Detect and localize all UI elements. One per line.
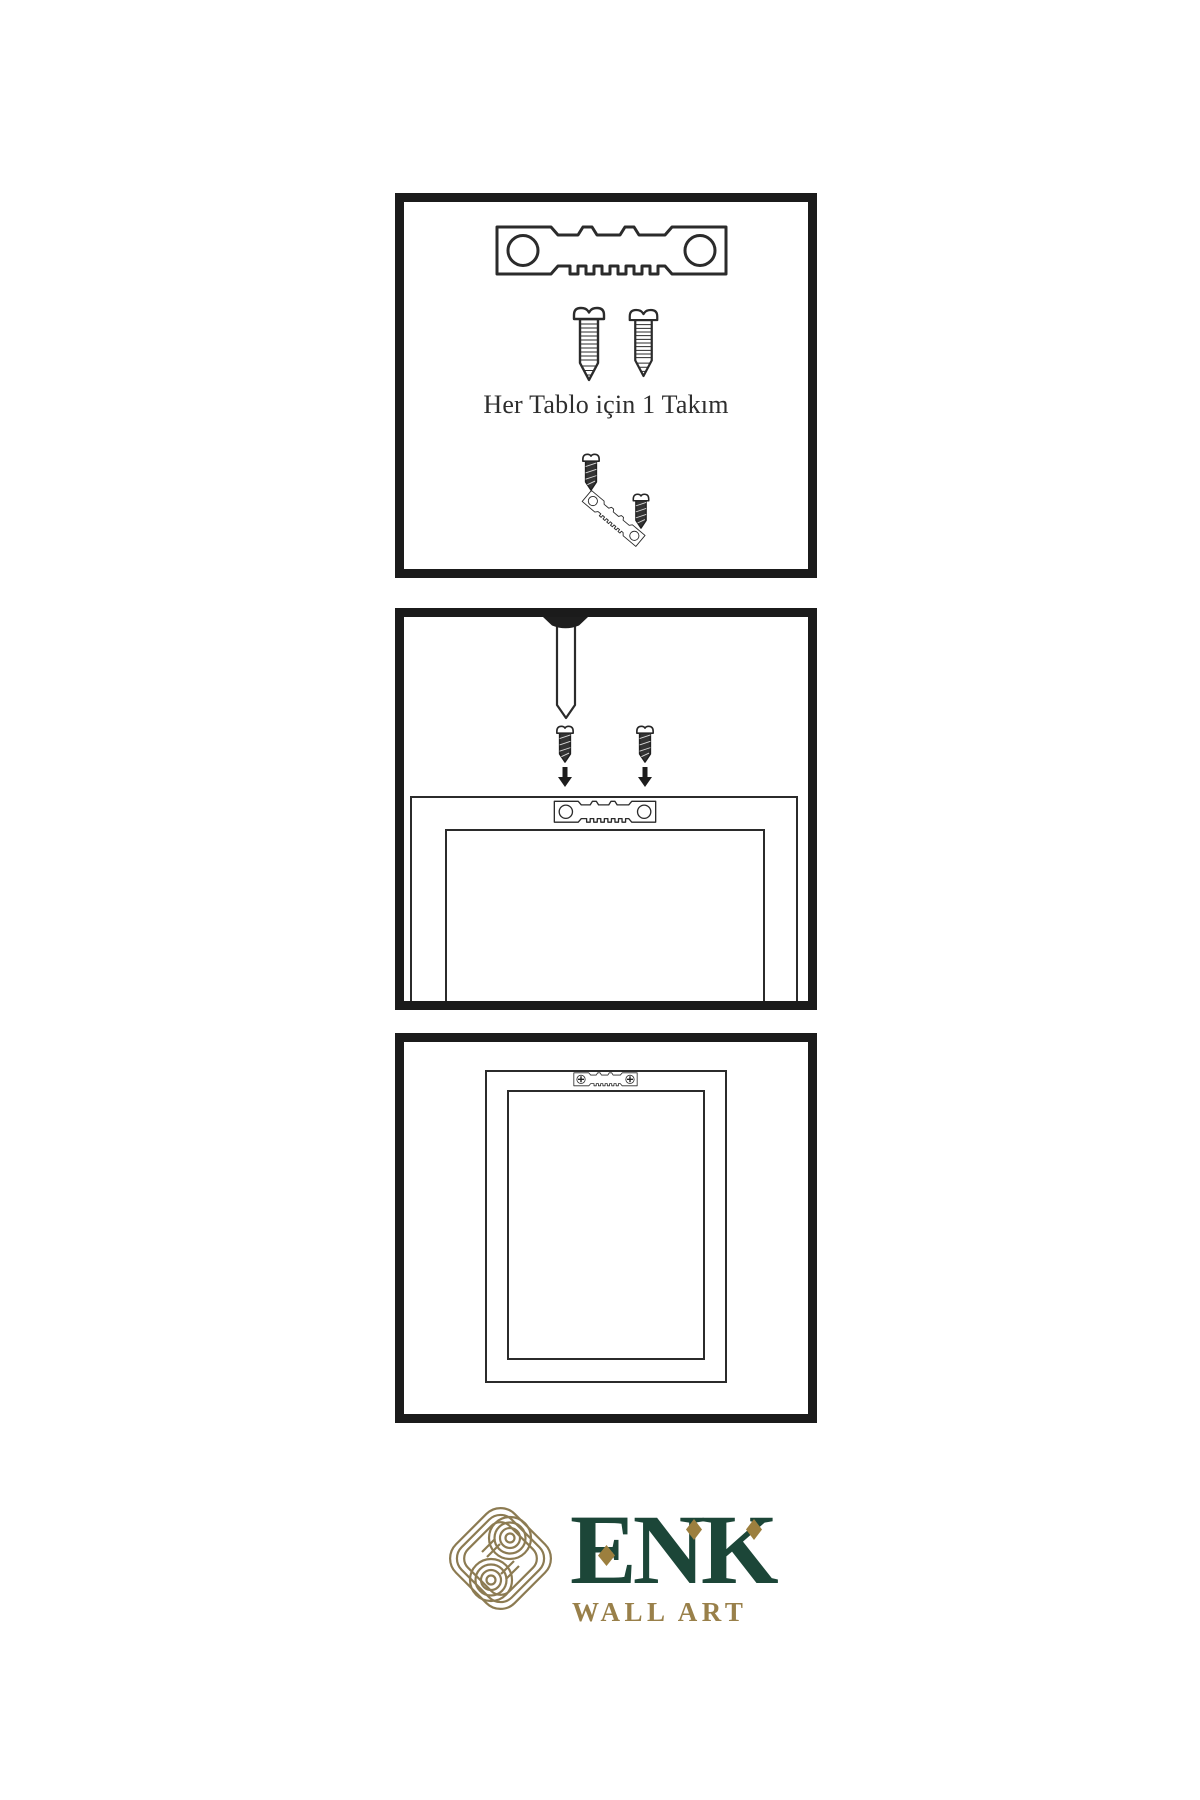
instruction-sheet: Her Tablo için 1 Takım — [0, 0, 1200, 1800]
brand-name: ENK — [570, 1500, 775, 1600]
brand-subtitle: WALL ART — [572, 1597, 747, 1628]
brand-logo: ENK WALL ART — [0, 0, 1200, 1800]
interlaced-knot-icon — [438, 1490, 563, 1627]
